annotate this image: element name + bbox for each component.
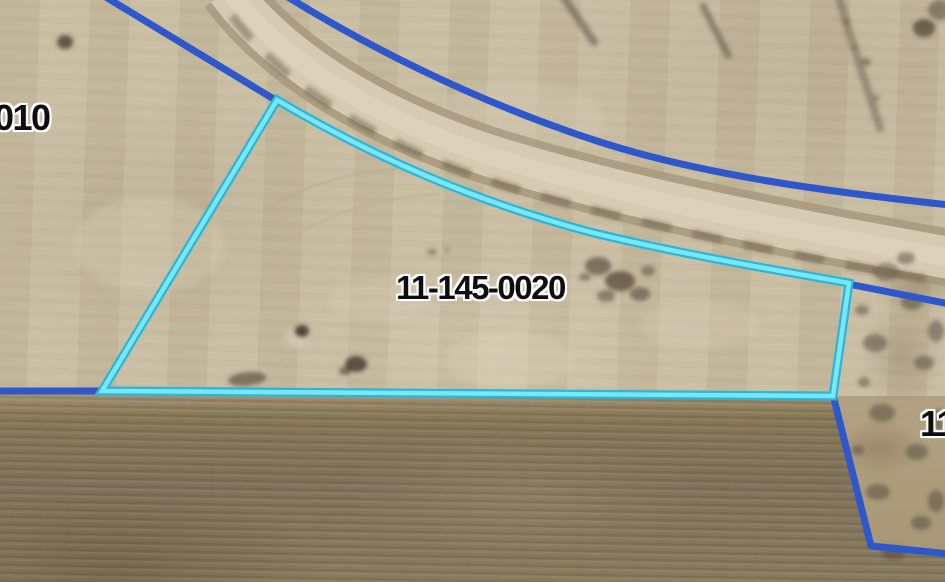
boundary-line-east [848,284,945,304]
terrain-streaks [563,0,880,128]
parcel-label-west: 010 [0,100,50,136]
parcel-map-canvas[interactable]: 010 11-145-0020 11 [0,0,945,582]
faint-track-marks [268,167,440,238]
parcel-label-highlighted: 11-145-0020 [396,271,565,304]
parcel-label-east: 11 [920,406,945,442]
